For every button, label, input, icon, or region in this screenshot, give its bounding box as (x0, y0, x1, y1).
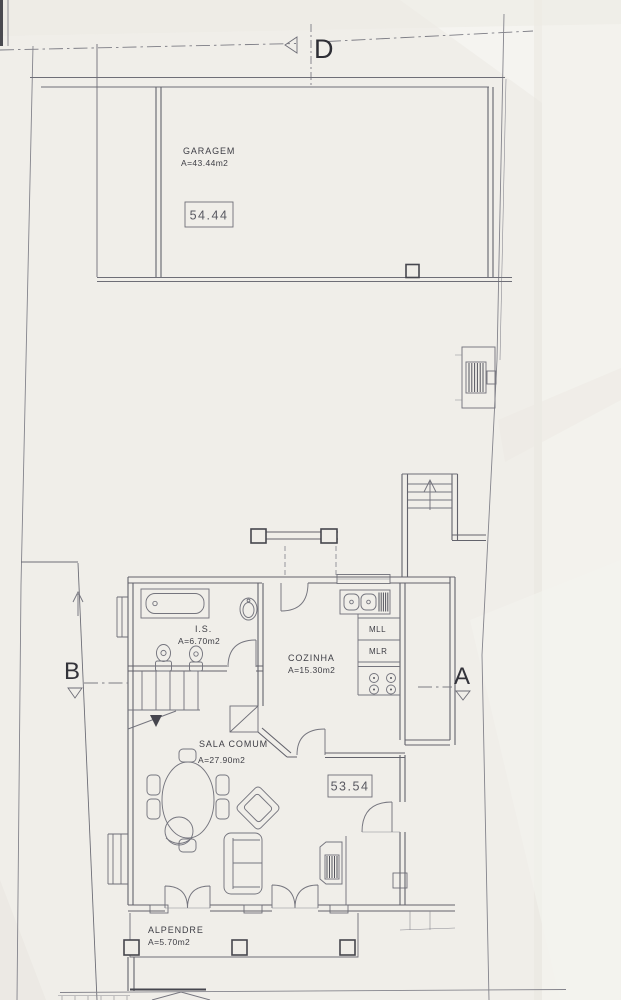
section-d-letter: D (314, 34, 334, 64)
garage-label: GARAGEM (183, 146, 235, 156)
section-a-letter: A (454, 663, 470, 690)
floor-plan-svg: GARAGEM A=43.44m2 54.44 (0, 0, 621, 1000)
porch-area-label: A=5.70m2 (148, 937, 190, 947)
garage-level-value: 54.44 (190, 209, 229, 223)
kitchen-area-label: A=15.30m2 (288, 665, 335, 675)
column-icon (232, 940, 247, 955)
garage-area-label: A=43.44m2 (181, 158, 228, 168)
dryer-label: MLR (369, 647, 387, 656)
kitchen-label: COZINHA (288, 653, 335, 663)
column-icon (340, 940, 355, 955)
living-room-area-label: A=27.90m2 (198, 755, 245, 765)
section-b-letter: B (64, 658, 80, 685)
bathroom-area-label: A=6.70m2 (178, 636, 220, 646)
bathroom-label: I.S. (195, 624, 212, 634)
page-edge-sliver (0, 0, 3, 46)
canopy-pillar (321, 529, 337, 543)
scanned-floorplan-page: GARAGEM A=43.44m2 54.44 (0, 0, 621, 1000)
washer-label: MLL (369, 625, 386, 634)
living-room-label: SALA COMUM (199, 739, 268, 749)
canopy-pillar (251, 529, 266, 543)
garage-pillar (406, 265, 419, 278)
column-icon (124, 940, 139, 955)
paper-shading (0, 0, 621, 1000)
porch-label: ALPENDRE (148, 925, 204, 935)
living-level-value: 53.54 (331, 780, 370, 794)
